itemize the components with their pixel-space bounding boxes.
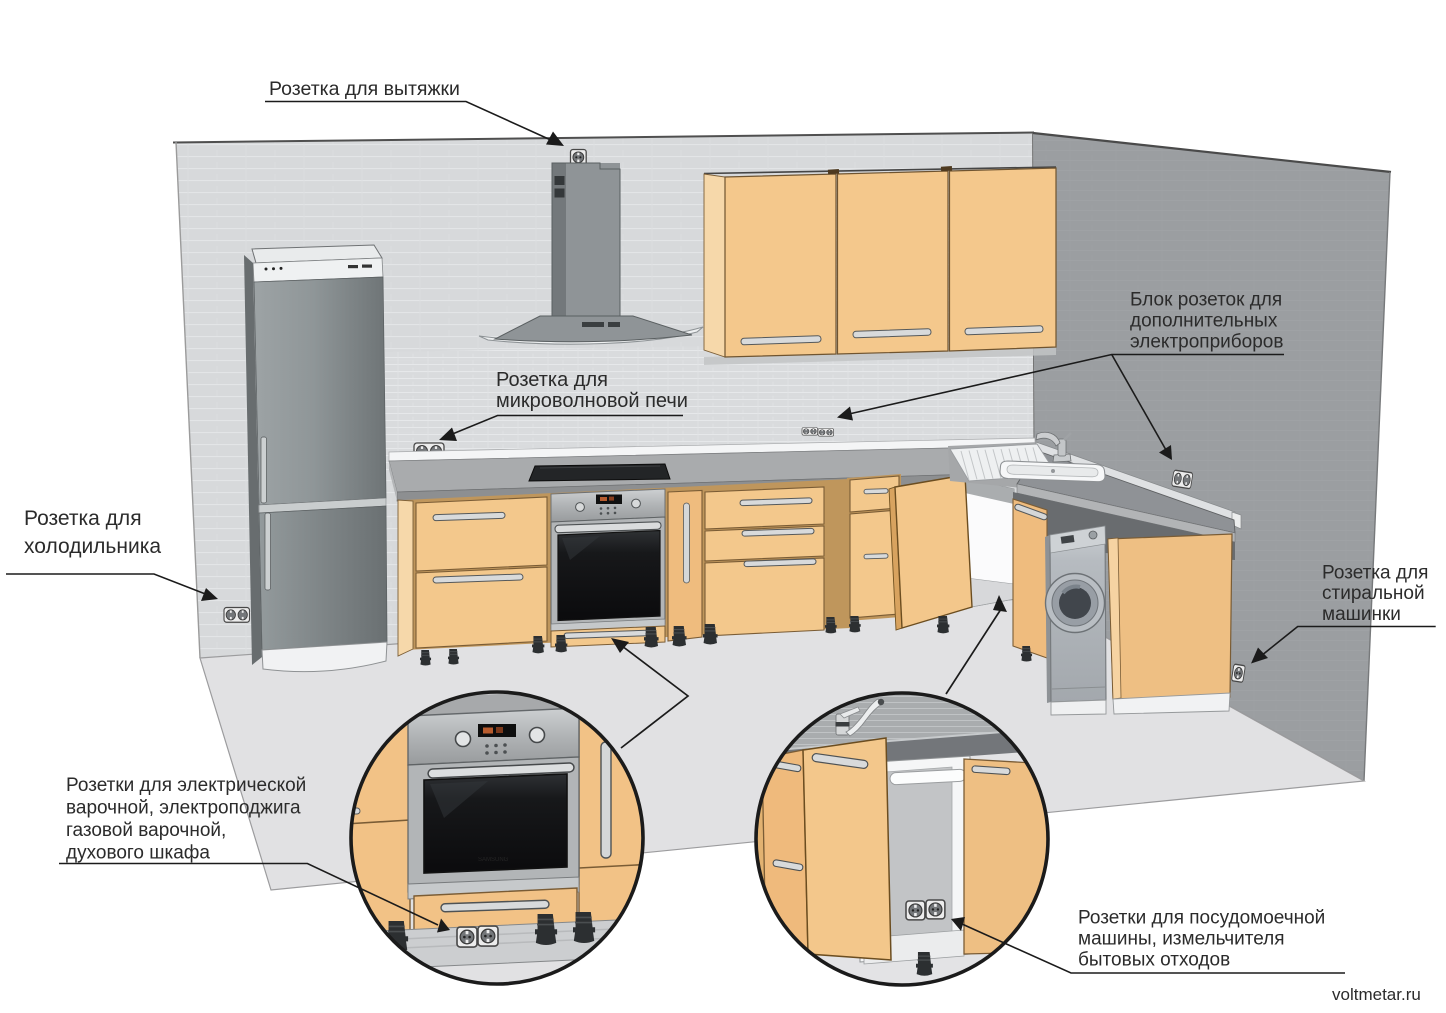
svg-text:микроволновой печи: микроволновой печи — [496, 390, 688, 412]
svg-text:газовой варочной,: газовой варочной, — [66, 820, 226, 841]
svg-text:SAMSUNG: SAMSUNG — [478, 857, 509, 863]
svg-text:Блок розеток для: Блок розеток для — [1130, 290, 1282, 311]
svg-text:бытовых отходов: бытовых отходов — [1078, 950, 1230, 971]
svg-text:Розетки для электрической: Розетки для электрической — [66, 775, 306, 796]
svg-text:Розетка для: Розетка для — [1322, 563, 1428, 584]
svg-text:машины, измельчителя: машины, измельчителя — [1078, 929, 1285, 950]
svg-text:дополнительных: дополнительных — [1130, 311, 1278, 332]
svg-text:электроприборов: электроприборов — [1130, 332, 1283, 353]
svg-text:варочной, электроподжига: варочной, электроподжига — [66, 798, 301, 819]
svg-text:Розетка для вытяжки: Розетка для вытяжки — [269, 78, 460, 100]
svg-text:voltmetar.ru: voltmetar.ru — [1332, 985, 1421, 1004]
svg-text:Розетки для посудомоечной: Розетки для посудомоечной — [1078, 908, 1325, 929]
svg-text:духового шкафа: духового шкафа — [66, 843, 210, 864]
svg-text:Розетка для: Розетка для — [496, 369, 608, 391]
svg-text:стиральной: стиральной — [1322, 583, 1425, 604]
svg-text:холодильника: холодильника — [24, 535, 161, 558]
svg-text:Розетка для: Розетка для — [24, 507, 142, 530]
svg-text:машинки: машинки — [1322, 604, 1401, 625]
